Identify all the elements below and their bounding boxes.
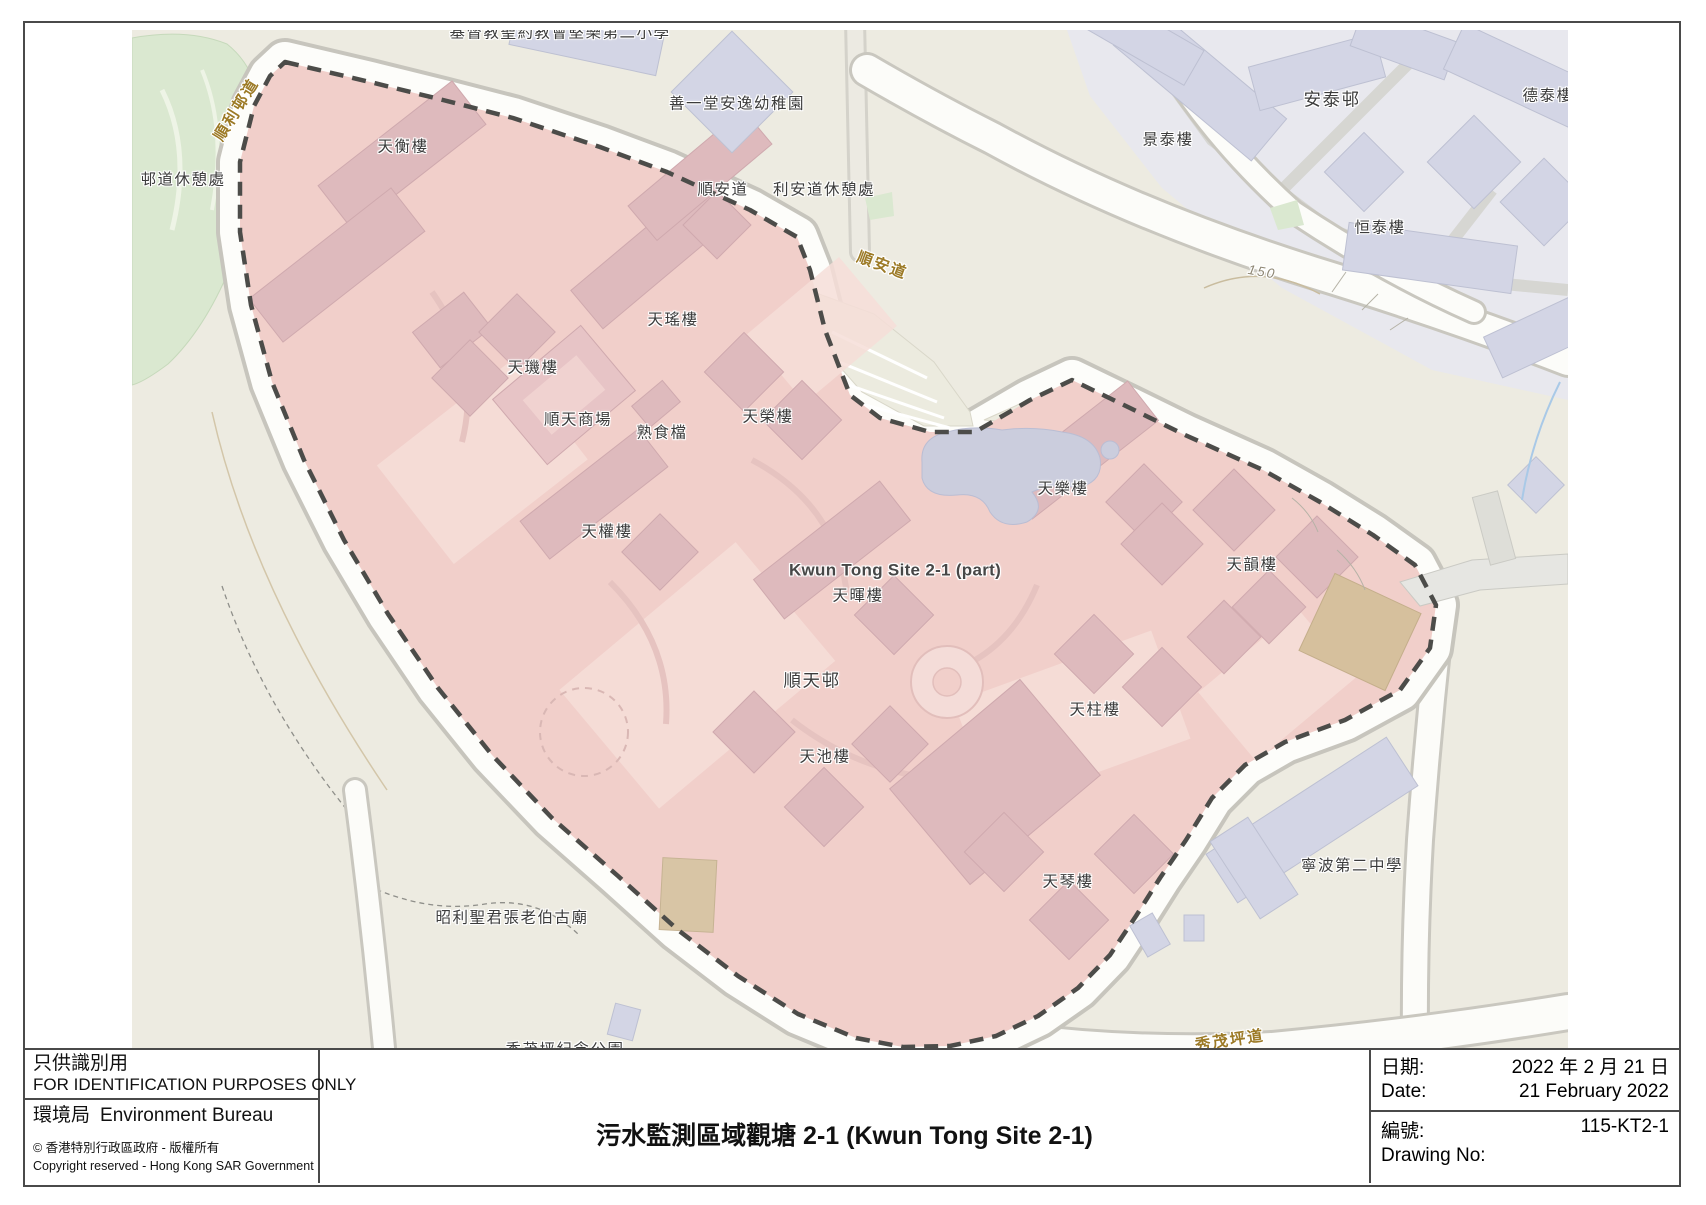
map-label-sau-mau-ping-road: 秀茂坪道 <box>1194 1028 1265 1048</box>
map-label-tak-tai-house: 德泰樓 <box>1522 88 1568 104</box>
map-label-lee-on-road-rest-garden: 利安道休憩處 <box>773 182 875 198</box>
map-labels: 基督教聖約教會堅樂第二小學善一堂安逸幼稚園順安道利安道休憩處順利邨道邨道休憩處順… <box>132 30 1568 1048</box>
drawing-no-label-en: Drawing No: <box>1381 1145 1486 1167</box>
bureau-name-en: Environment Bureau <box>100 1105 273 1126</box>
copyright-en: Copyright reserved - Hong Kong SAR Gover… <box>33 1159 314 1173</box>
map-label-tin-chi-house: 天池樓 <box>799 749 850 765</box>
map-label-tin-kei-house: 天璣樓 <box>507 360 558 376</box>
map-label-tin-fai-house: 天暉樓 <box>832 588 883 604</box>
map-label-shun-on-road-name: 順安道 <box>697 182 748 198</box>
identification-note-zh: 只供識別用 <box>33 1053 128 1075</box>
map-label-site-name: Kwun Tong Site 2-1 (part) <box>789 562 1001 579</box>
map-area: 基督教聖約教會堅樂第二小學善一堂安逸幼稚園順安道利安道休憩處順利邨道邨道休憩處順… <box>132 30 1568 1048</box>
map-label-shun-tin-shopping-centre: 順天商場 <box>544 412 612 428</box>
drawing-no-value: 115-KT2-1 <box>1581 1116 1669 1143</box>
titleblock-left-inner-line <box>25 1098 318 1100</box>
map-label-tin-lok-house: 天樂樓 <box>1037 481 1088 497</box>
map-label-temple-chiu-lee-sing-kwan: 昭利聖君張老伯古廟 <box>435 910 588 926</box>
drawing-no-cell: 編號: 115-KT2-1 Drawing No: <box>1371 1114 1679 1167</box>
map-label-king-tai-house: 景泰樓 <box>1142 132 1193 148</box>
map-label-tin-yiu-house: 天瑤樓 <box>647 312 698 328</box>
date-value-zh: 2022 年 2 月 21 日 <box>1512 1052 1669 1079</box>
map-label-kindergarten: 善一堂安逸幼稚園 <box>669 96 805 112</box>
map-label-tin-hang-house: 天衡樓 <box>377 139 428 155</box>
map-label-on-tai-estate: 安泰邨 <box>1304 91 1361 109</box>
map-label-shun-tin-estate: 順天邨 <box>784 672 841 690</box>
date-cell: 日期: 2022 年 2 月 21 日 Date: 21 February 20… <box>1371 1050 1679 1103</box>
map-label-tin-kuen-house: 天權樓 <box>581 524 632 540</box>
bureau-name: 環境局Environment Bureau <box>33 1105 273 1127</box>
map-label-school-top-clipped: 基督教聖約教會堅樂第二小學 <box>449 30 670 41</box>
map-label-contour-150: 150 <box>1247 263 1277 281</box>
map-label-hang-tai-house: 恒泰樓 <box>1354 220 1405 236</box>
map-label-shun-lee-estate-road: 順利邨道 <box>212 76 262 144</box>
identification-note-en: FOR IDENTIFICATION PURPOSES ONLY <box>33 1075 356 1095</box>
date-label-zh: 日期: <box>1381 1052 1424 1079</box>
map-label-ning-po-no2-college: 寧波第二中學 <box>1301 858 1403 874</box>
map-label-estate-road-rest-garden: 邨道休憩處 <box>140 172 225 188</box>
copyright-zh: © 香港特別行政區政府 - 版權所有 <box>33 1141 219 1155</box>
map-label-cooked-food-stalls: 熟食檔 <box>636 425 687 441</box>
date-value-en: 21 February 2022 <box>1519 1081 1669 1103</box>
titleblock-right-inner-line <box>1371 1110 1679 1112</box>
map-label-tin-wing-house: 天榮樓 <box>742 409 793 425</box>
map-label-tin-wan-house: 天韻樓 <box>1226 557 1277 573</box>
drawing-no-label-zh: 編號: <box>1381 1116 1424 1143</box>
map-label-shun-on-road: 順安道 <box>855 250 910 283</box>
map-label-tin-kam-house: 天琴樓 <box>1042 874 1093 890</box>
drawing-page: 基督教聖約教會堅樂第二小學善一堂安逸幼稚園順安道利安道休憩處順利邨道邨道休憩處順… <box>0 0 1706 1205</box>
bureau-name-zh: 環境局 <box>33 1105 90 1126</box>
date-label-en: Date: <box>1381 1081 1426 1103</box>
drawing-title: 污水監測區域觀塘 2-1 (Kwun Tong Site 2-1) <box>320 1048 1369 1183</box>
map-label-tin-chu-house: 天柱樓 <box>1069 702 1120 718</box>
